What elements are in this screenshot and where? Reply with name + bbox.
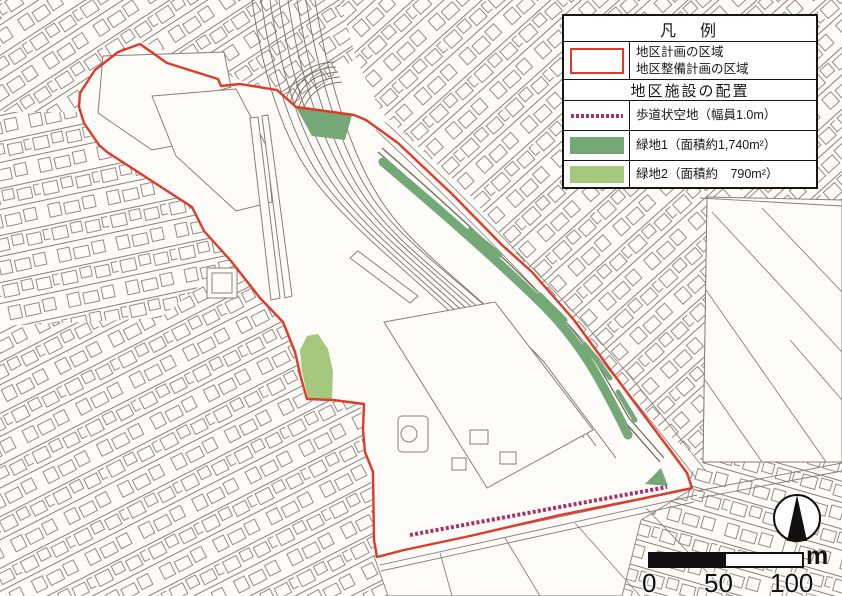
scale-bar-white-segment	[726, 554, 802, 566]
walkway-label: 歩道状空地（幅員1.0m）	[630, 105, 782, 125]
district-improvement-area-text: 地区整備計画の区域	[636, 61, 749, 77]
scale-unit: m	[806, 542, 828, 571]
green1-swatch-cell	[564, 131, 630, 160]
walkway-swatch-cell	[564, 101, 630, 130]
scale-tick-0: 0	[642, 568, 656, 596]
scale-bar-black-segment	[650, 554, 726, 566]
scale-bar: m 0 50 100	[640, 548, 840, 596]
green2-swatch	[570, 166, 624, 183]
district-plan-area-text: 地区計画の区域	[636, 44, 749, 60]
scale-bar-segments	[648, 552, 804, 568]
district-area-red-swatch	[570, 48, 624, 74]
east-fields	[700, 197, 842, 462]
walkway-dotted-swatch	[571, 114, 623, 118]
legend-row-green2: 緑地2（面積約 790m²）	[564, 160, 816, 187]
legend-section-title: 地区施設の配置	[564, 79, 816, 100]
legend-box: 凡 例 地区計画の区域 地区整備計画の区域 地区施設の配置 歩道状空地（幅員1.…	[562, 14, 818, 189]
district-plan-map-page: 凡 例 地区計画の区域 地区整備計画の区域 地区施設の配置 歩道状空地（幅員1.…	[0, 0, 842, 596]
district-area-label: 地区計画の区域 地区整備計画の区域	[630, 42, 755, 79]
legend-title: 凡 例	[564, 16, 816, 41]
legend-row-district-area: 地区計画の区域 地区整備計画の区域	[564, 41, 816, 79]
green2-swatch-cell	[564, 161, 630, 187]
green1-label: 緑地1（面積約1,740m²）	[630, 135, 782, 155]
green1-swatch	[570, 137, 624, 154]
scale-tick-50: 50	[704, 568, 733, 596]
green2-label: 緑地2（面積約 790m²）	[630, 164, 784, 184]
legend-row-green1: 緑地1（面積約1,740m²）	[564, 130, 816, 160]
scale-tick-100: 100	[770, 568, 813, 596]
legend-row-walkway: 歩道状空地（幅員1.0m）	[564, 100, 816, 130]
north-arrow	[771, 491, 823, 545]
district-area-swatch-cell	[564, 42, 630, 79]
